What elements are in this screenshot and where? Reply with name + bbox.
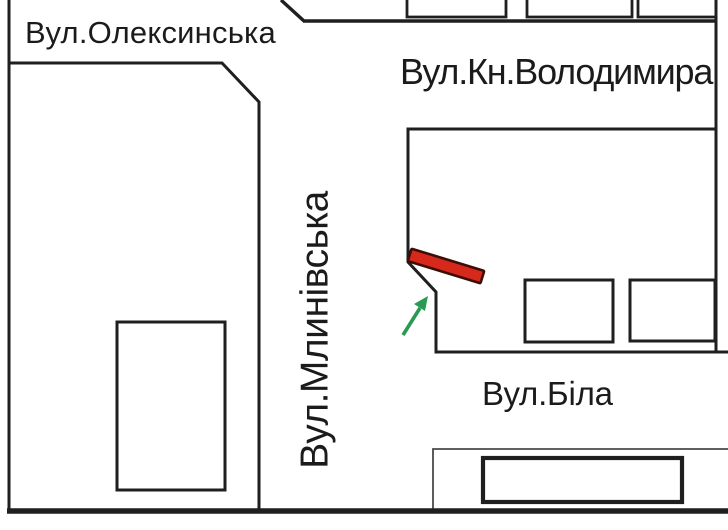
- building-central-annex-1: [525, 280, 613, 342]
- direction-arrow-shaft: [403, 308, 420, 335]
- street-label-kn-volodymyra: Вул.Кн.Володимира: [400, 54, 712, 90]
- direction-arrow-icon: [403, 296, 428, 335]
- location-map: Вул.Олексинська Вул.Кн.Володимира Вул.Мл…: [0, 0, 728, 530]
- street-label-oleksynska: Вул.Олексинська: [25, 17, 276, 48]
- building-south-inner: [483, 458, 682, 502]
- building-north-2: [527, 0, 632, 17]
- street-label-mlynivska: Вул.Млинівська: [296, 191, 335, 469]
- building-north-1: [407, 0, 506, 17]
- building-central-annex-2: [630, 280, 715, 341]
- billboard-marker: [408, 249, 484, 284]
- building-north-3: [638, 0, 716, 17]
- building-block-west: [9, 63, 259, 511]
- building-west-inner: [117, 322, 225, 490]
- street-label-bila: Вул.Біла: [482, 377, 613, 410]
- building-central: [408, 129, 728, 352]
- billboard-marker-rect: [408, 249, 484, 284]
